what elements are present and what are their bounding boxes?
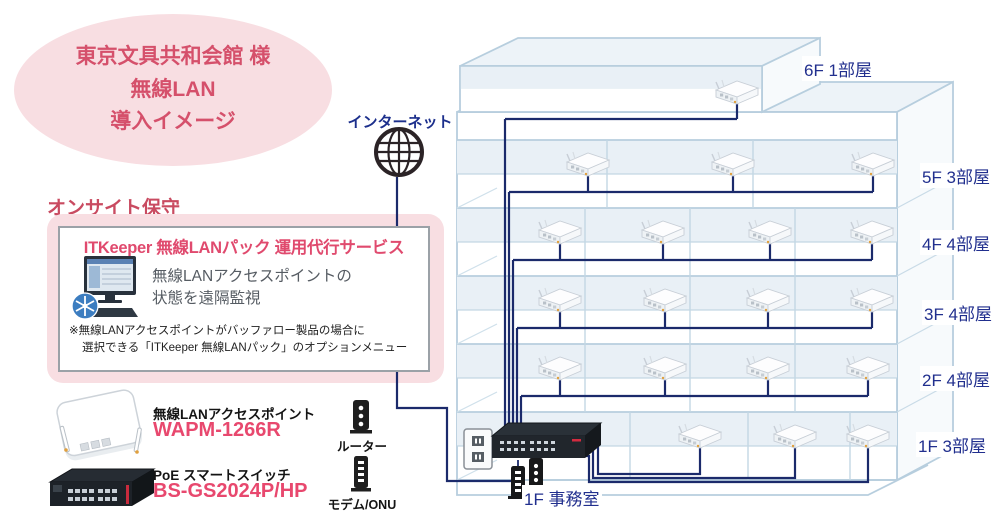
legend-ap-image [55,388,144,462]
internet-label: インターネット [344,111,456,132]
internet-globe-icon [376,129,422,175]
legend-modem-icon [351,456,371,492]
service-description: 無線LANアクセスポイントの 状態を遠隔監視 [152,266,352,311]
outlet-icon [464,429,492,469]
service-note: ※無線LANアクセスポイントがバッファロー製品の場合に 選択できる「ITKeep… [69,323,407,358]
floor-label-5f: 5F 3部屋 [920,163,992,188]
floor-label-4f: 4F 4部屋 [920,230,992,255]
legend-ap-model: WAPM-1266R [153,419,281,442]
legend-router-icon [350,400,372,434]
service-panel: ITKeeper 無線LANパック 運用代行サービス 無線LANアクセスポイント… [58,226,430,372]
penthouse-6f [460,38,820,112]
service-title: ITKeeper 無線LANパック 運用代行サービス [60,234,428,258]
network-diagram: 東京文具共和会館 様 無線LAN 導入イメージ オンサイト保守 [0,0,1008,530]
poe-switch-icon [492,423,601,458]
floor-label-1f: 1F 3部屋 [916,432,988,457]
legend-router-label: ルーター [333,436,391,455]
legend-modem-label: モデム/ONU [322,494,402,513]
legend-switch-model: BS-GS2024P/HP [153,480,308,503]
remote-monitoring-icon [70,256,146,326]
floor-label-3f: 3F 4部屋 [922,300,994,325]
office-label: 1F 事務室 [522,485,602,510]
legend-switch-image [50,469,154,506]
floor-label-2f: 2F 4部屋 [920,366,992,391]
floor-label-6f: 6F 1部屋 [802,56,874,81]
